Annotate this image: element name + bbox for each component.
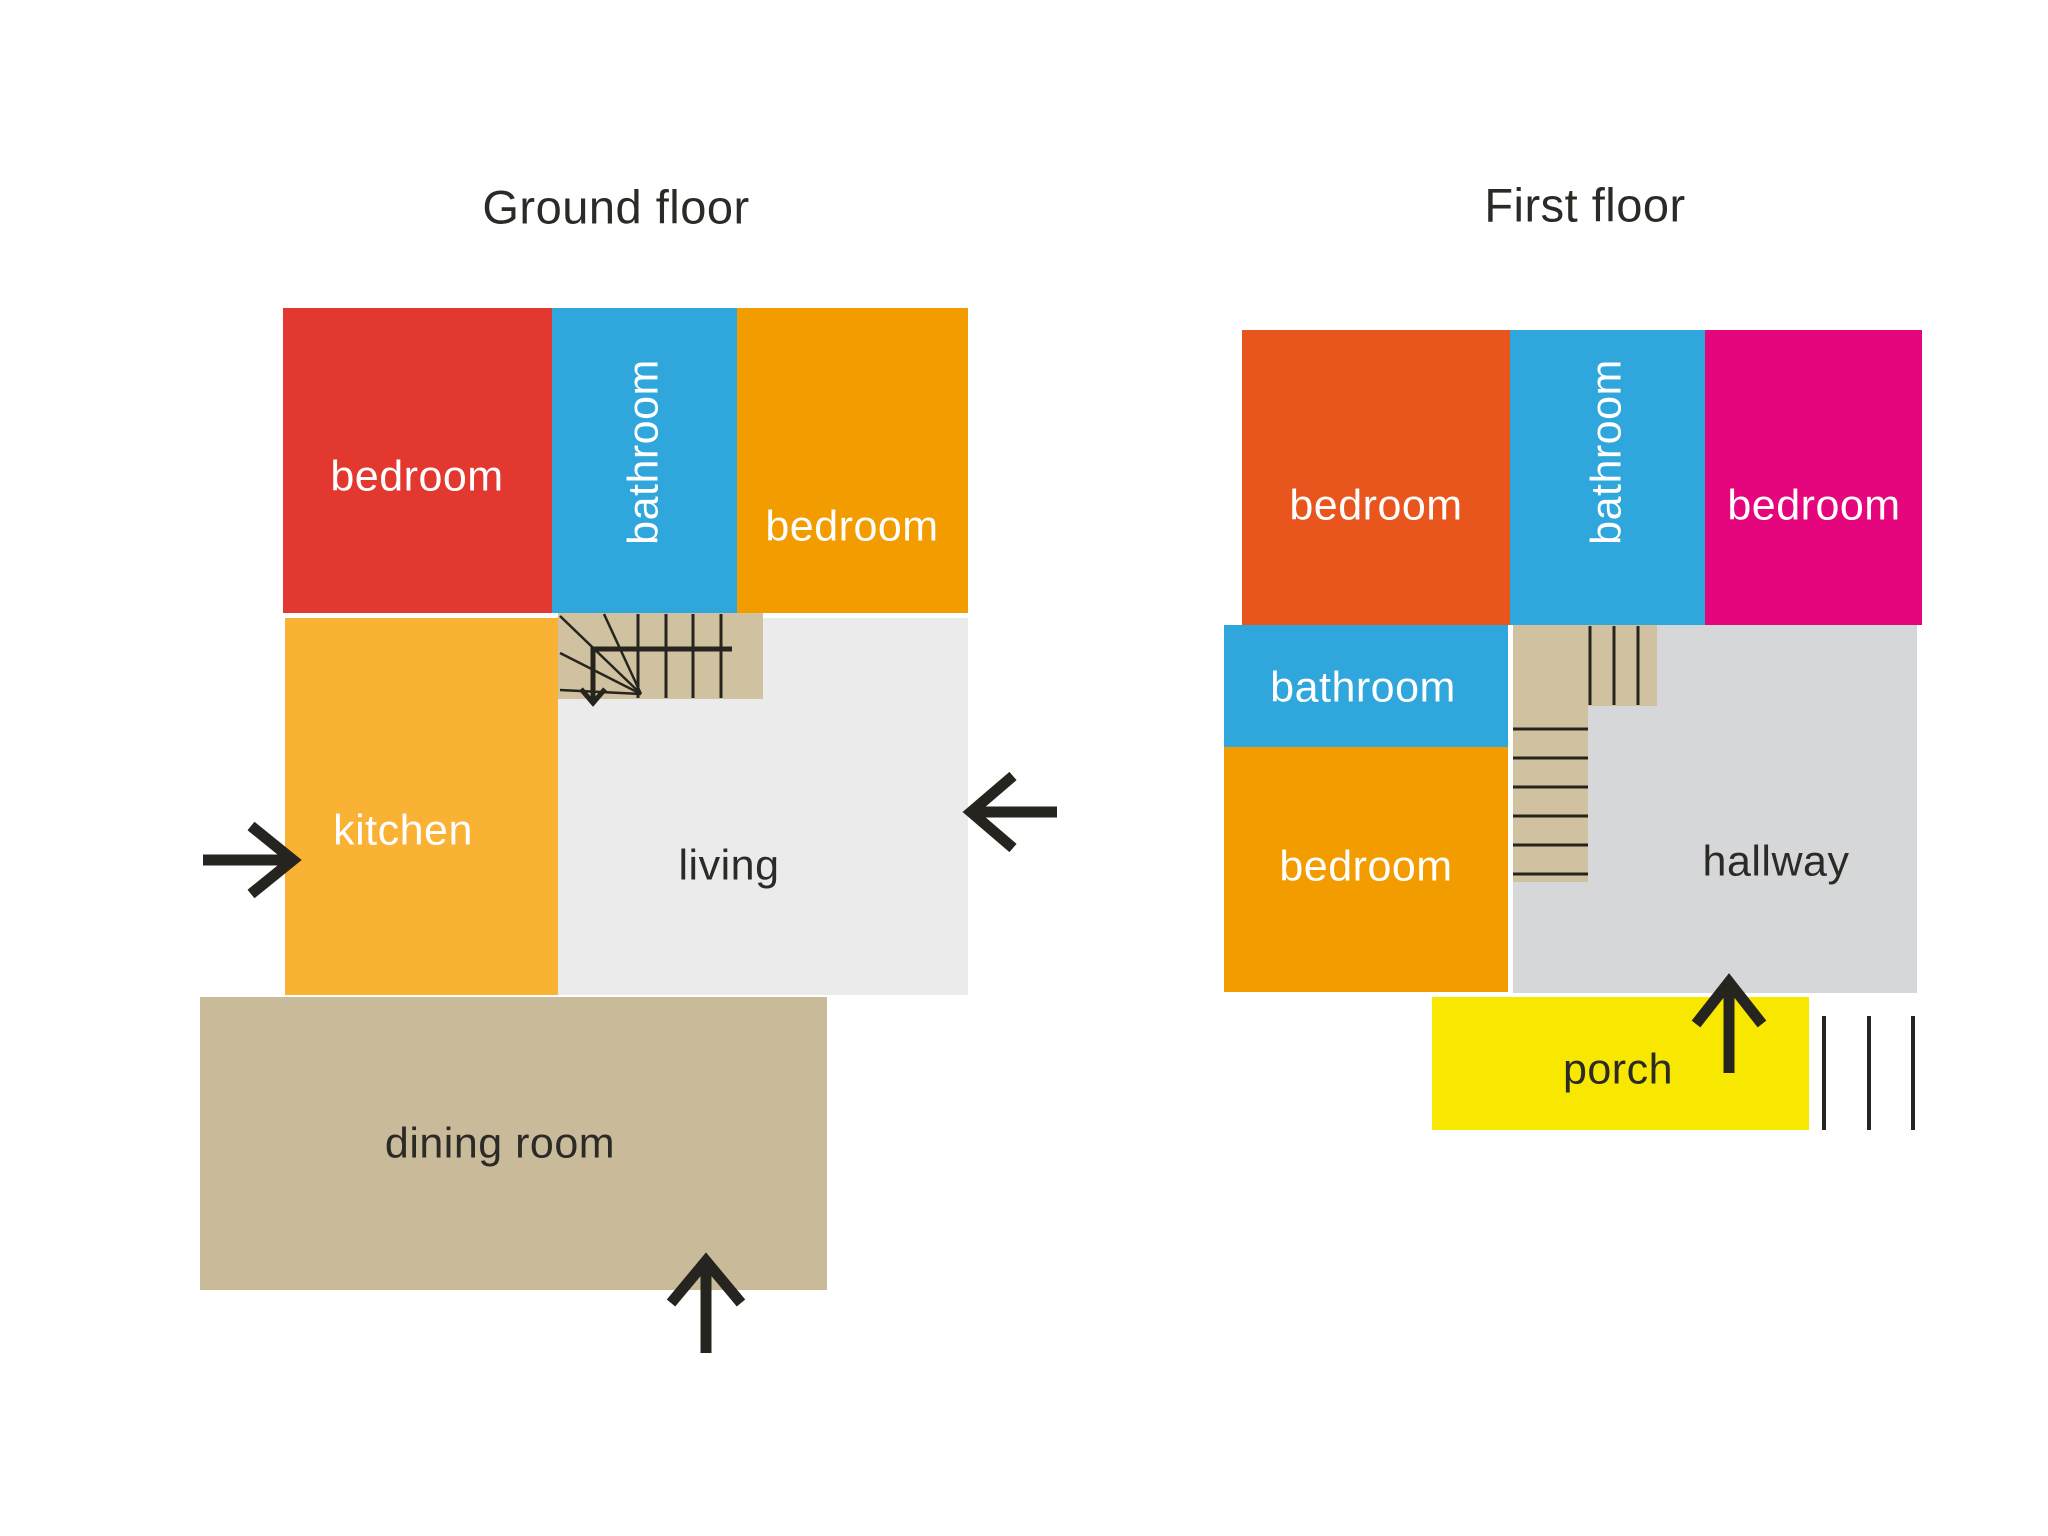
gf-stairs-area (558, 613, 763, 699)
ff-bathroom-small-label: bathroom (1270, 664, 1456, 713)
floor-plan-diagram: Ground floor bedroom bathroom bedroom ki… (0, 0, 2048, 1536)
ff-bedroom-bottom-label: bedroom (1279, 843, 1452, 892)
ff-stairs-landing (1588, 625, 1657, 706)
ff-porch-label: porch (1563, 1046, 1673, 1095)
gf-bedroom-left-label: bedroom (330, 453, 503, 502)
ff-bedroom-left-room (1242, 330, 1510, 625)
gf-bedroom-right-label: bedroom (765, 503, 938, 552)
first-floor-title: First floor (1484, 178, 1685, 233)
ff-entrance-step-lines (1824, 1016, 1913, 1130)
gf-kitchen-entry-arrow-icon (203, 826, 293, 894)
gf-living-entry-arrow-icon (971, 776, 1057, 848)
ff-bedroom-left-label: bedroom (1289, 482, 1462, 531)
gf-living-label: living (679, 842, 780, 891)
ff-hallway-label: hallway (1703, 838, 1850, 887)
gf-bedroom-right-room (737, 308, 968, 613)
gf-kitchen-label: kitchen (333, 807, 473, 856)
ff-bedroom-right-label: bedroom (1727, 482, 1900, 531)
gf-dining-label: dining room (385, 1120, 615, 1169)
gf-living-arrow-head (971, 776, 1013, 848)
ff-bathroom-top-label: bathroom (1583, 359, 1632, 545)
ff-stairs-strip (1513, 625, 1588, 882)
ground-floor-title: Ground floor (482, 180, 749, 235)
ff-bedroom-right-room (1705, 330, 1922, 625)
gf-bathroom-label: bathroom (620, 359, 669, 545)
